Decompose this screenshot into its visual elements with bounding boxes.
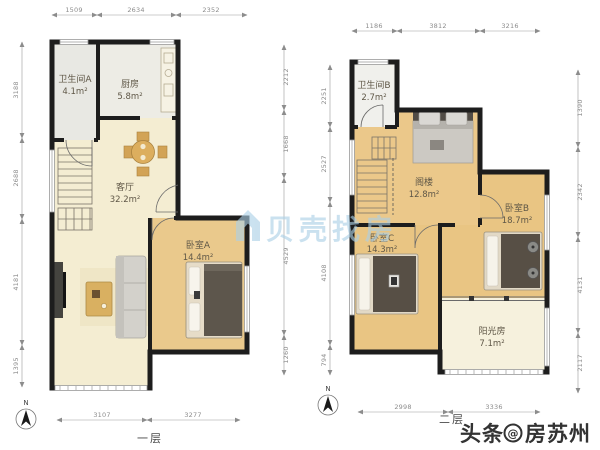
- floor1-label: 一层: [137, 432, 163, 445]
- dim-value: 4529: [282, 247, 290, 264]
- dim-value: 2352: [202, 6, 219, 14]
- floorplan-page: 卫生间A 4.1m² 厨房 5.8m² 客厅 32.2m² 卧室A 14.4m²…: [0, 0, 600, 450]
- beike-watermark: 贝壳找房: [236, 210, 398, 246]
- footer-name: 房苏州: [525, 422, 591, 446]
- kitchen-counter: [161, 48, 176, 112]
- north-label: N: [325, 385, 330, 393]
- dim-value: 4131: [576, 276, 584, 293]
- bed-attic: [413, 108, 473, 163]
- dim-value: 794: [320, 353, 328, 366]
- footer-at-icon: @: [508, 427, 519, 440]
- compass-floor2: N: [318, 385, 338, 415]
- dim-value: 3107: [93, 411, 110, 419]
- room-bathA-name: 卫生间A: [58, 73, 92, 85]
- room-sunroom-area: 7.1m²: [479, 339, 504, 349]
- room-kitchen-name: 厨房: [121, 78, 139, 90]
- north-label: N: [23, 399, 28, 407]
- dim-value: 1186: [365, 22, 382, 30]
- dim-value: 2998: [394, 403, 411, 411]
- dim-value: 2117: [576, 354, 584, 371]
- dim-value: 1509: [65, 6, 82, 14]
- room-bathA-area: 4.1m²: [62, 87, 87, 97]
- room-attic-name: 阁楼: [415, 176, 433, 188]
- dim-value: 3277: [184, 411, 201, 419]
- watermark-text: 贝壳找房: [266, 213, 398, 246]
- dim-value: 2634: [127, 6, 144, 14]
- dim-value: 3812: [429, 22, 446, 30]
- room-bedroomA-name: 卧室A: [186, 239, 211, 251]
- room-bedroomB-area: 18.7m²: [502, 216, 533, 226]
- room-attic-area: 12.8m²: [409, 190, 440, 200]
- dim-value: 3216: [501, 22, 518, 30]
- dim-value: 2342: [576, 183, 584, 200]
- room-bedroomB-name: 卧室B: [505, 202, 529, 214]
- room-living-name: 客厅: [116, 181, 134, 193]
- room-living-area: 32.2m²: [110, 195, 141, 205]
- dim-value: 3336: [485, 403, 502, 411]
- footer-prefix: 头条: [460, 422, 504, 446]
- dim-value: 3188: [12, 81, 20, 98]
- dim-value: 1395: [12, 357, 20, 374]
- dim-value: 4181: [12, 273, 20, 290]
- dim-value: 1390: [576, 99, 584, 116]
- room-sunroom-name: 阳光房: [478, 325, 505, 337]
- bed-bedroomC: [356, 254, 418, 314]
- room-bathB-name: 卫生间B: [357, 79, 390, 91]
- bed-bedroomB: [484, 232, 542, 290]
- room-bathB-area: 2.7m²: [361, 93, 386, 103]
- footer-brand: 头条 @ 房苏州: [460, 422, 591, 446]
- room-bedroomC-area: 14.3m²: [367, 245, 398, 255]
- dim-value: 1260: [282, 346, 290, 363]
- dim-value: 2212: [282, 68, 290, 85]
- dim-value: 1668: [282, 135, 290, 152]
- bed-bedroomA: [186, 262, 242, 338]
- dim-value: 2688: [12, 169, 20, 186]
- compass-floor1: N: [16, 399, 36, 429]
- floorplan-canvas: 卫生间A 4.1m² 厨房 5.8m² 客厅 32.2m² 卧室A 14.4m²…: [0, 0, 600, 450]
- room-kitchen-area: 5.8m²: [117, 92, 142, 102]
- floor1-plan: 卫生间A 4.1m² 厨房 5.8m² 客厅 32.2m² 卧室A 14.4m²…: [12, 6, 290, 445]
- room-bedroomA-area: 14.4m²: [183, 253, 214, 263]
- dim-value: 4108: [320, 264, 328, 281]
- dim-value: 2527: [320, 155, 328, 172]
- dim-value: 2251: [320, 87, 328, 104]
